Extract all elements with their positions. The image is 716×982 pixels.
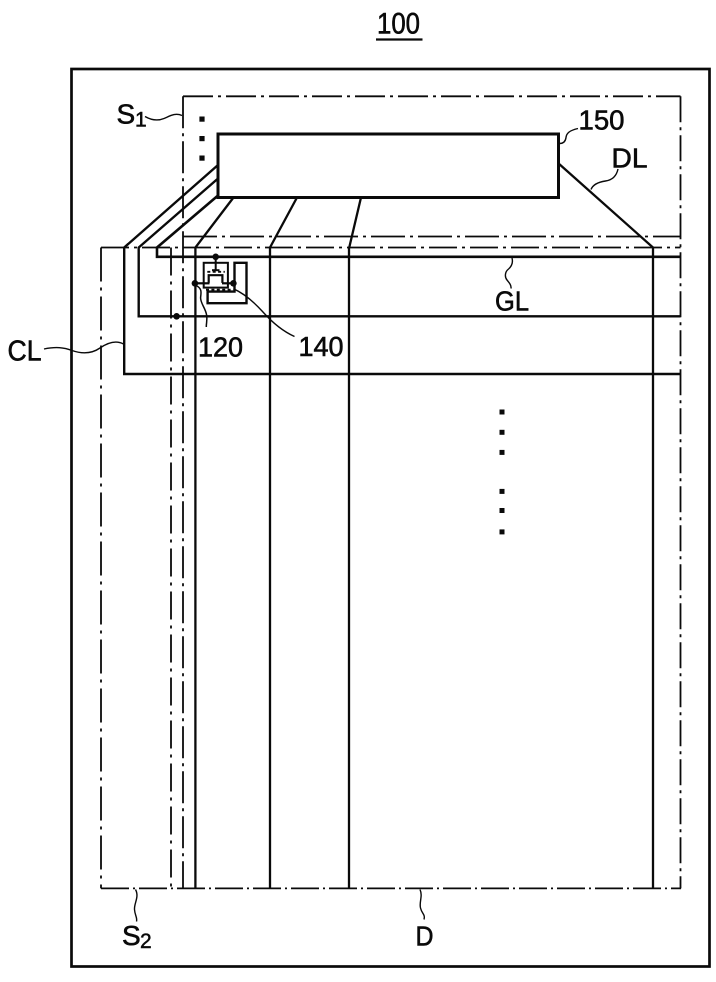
- svg-text:100: 100: [377, 8, 420, 41]
- svg-text:GL: GL: [495, 286, 529, 317]
- svg-text:1: 1: [135, 109, 147, 132]
- svg-text:150: 150: [579, 105, 625, 136]
- svg-text:DL: DL: [612, 143, 648, 174]
- svg-text:CL: CL: [8, 336, 42, 368]
- svg-text:S: S: [117, 98, 136, 129]
- svg-text:120: 120: [198, 332, 243, 363]
- svg-text:140: 140: [299, 331, 344, 362]
- svg-text:S: S: [122, 920, 141, 951]
- svg-text:D: D: [416, 921, 434, 952]
- svg-text:2: 2: [140, 930, 152, 953]
